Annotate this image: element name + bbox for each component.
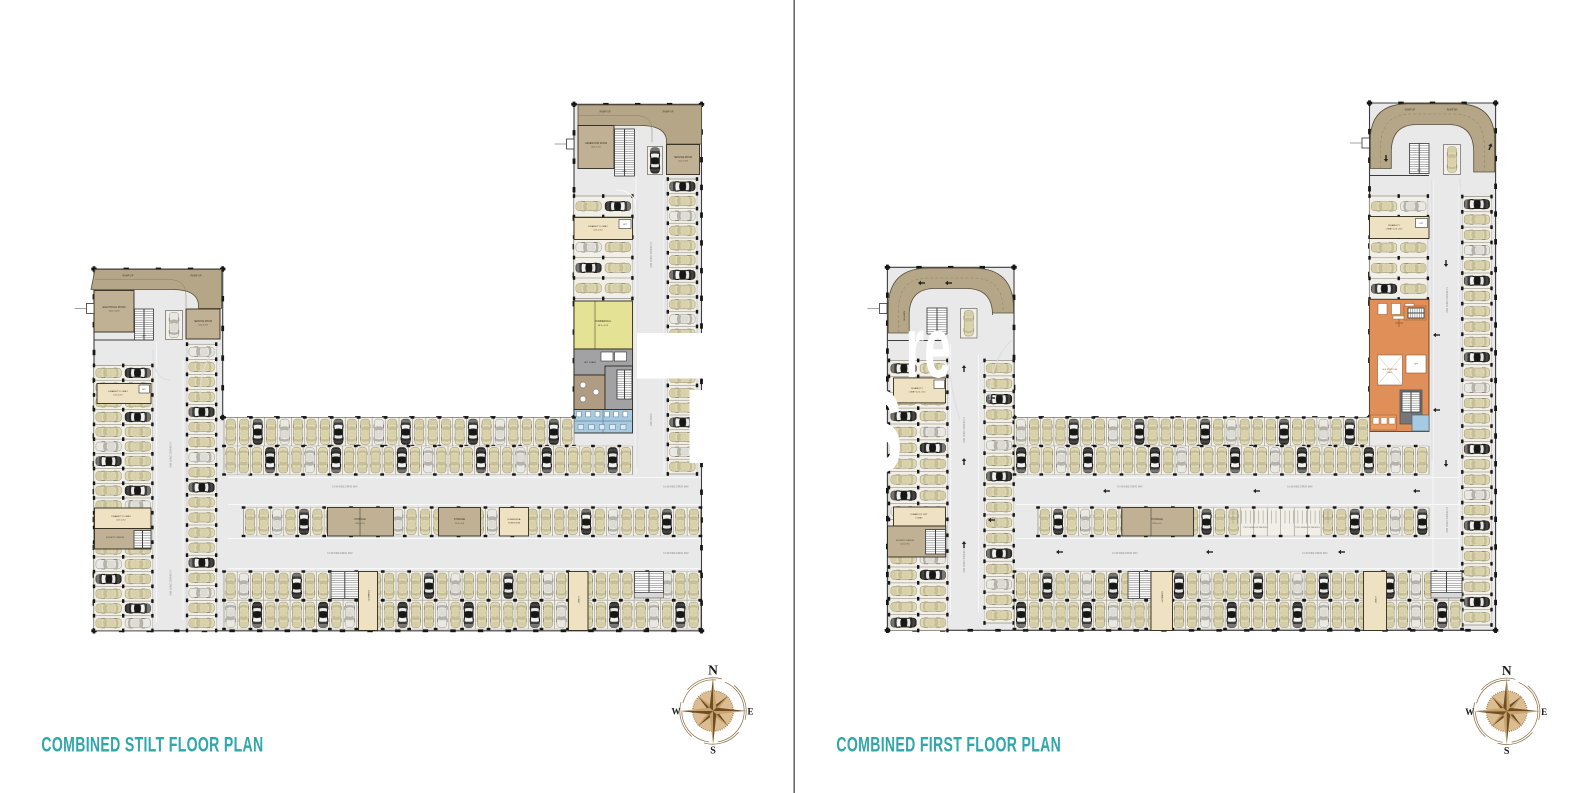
svg-text:ELECTRICAL ROOM: ELECTRICAL ROOM (103, 306, 126, 309)
svg-text:12.5 x 8.2: 12.5 x 8.2 (113, 395, 123, 397)
svg-text:SERVICE ROOM: SERVICE ROOM (194, 321, 212, 323)
svg-text:DISABILITY LOBBY: DISABILITY LOBBY (588, 225, 608, 228)
svg-text:GENERATOR ROOM: GENERATOR ROOM (585, 142, 607, 145)
svg-text:12.0 x 10.5: 12.0 x 10.5 (109, 311, 121, 313)
svg-text:18.5 x 14.2: 18.5 x 14.2 (598, 325, 609, 327)
svg-text:N: N (708, 663, 718, 678)
svg-text:TWO WHEELER PARKING: TWO WHEELER PARKING (1295, 526, 1320, 529)
svg-text:9.0 M WIDE DRIVE WAY: 9.0 M WIDE DRIVE WAY (663, 486, 689, 489)
svg-text:W: W (1465, 707, 1474, 717)
svg-text:LOBBY: LOBBY (916, 518, 924, 520)
svg-text:SERVICE ROOM: SERVICE ROOM (674, 157, 692, 159)
svg-text:9.0 M WIDE DRIVE WAY: 9.0 M WIDE DRIVE WAY (1112, 552, 1138, 555)
svg-text:9.0 M WIDE DRIVE WAY: 9.0 M WIDE DRIVE WAY (1445, 287, 1448, 313)
svg-text:E: E (1541, 707, 1547, 717)
svg-text:9.0 M WIDE DRIVE WAY: 9.0 M WIDE DRIVE WAY (169, 570, 172, 596)
svg-text:DISABILITY: DISABILITY (1388, 224, 1400, 227)
svg-text:SOCIETY OFFICE: SOCIETY OFFICE (896, 540, 915, 542)
svg-text:LOBBY: LOBBY (577, 597, 579, 605)
svg-text:LIFT: LIFT (1417, 170, 1422, 172)
svg-text:S: S (1504, 746, 1510, 757)
svg-text:COMMERCIAL: COMMERCIAL (595, 320, 612, 323)
svg-text:9.0 M WIDE DRIVE WAY: 9.0 M WIDE DRIVE WAY (169, 442, 172, 468)
svg-text:9.0 M WIDE DRIVE WAY: 9.0 M WIDE DRIVE WAY (1445, 507, 1448, 533)
svg-text:RAMP UP: RAMP UP (600, 111, 611, 114)
svg-text:TION ROOM: TION ROOM (508, 523, 520, 525)
svg-text:E: E (747, 707, 753, 717)
svg-text:SOCIETY OFFICE: SOCIETY OFFICE (106, 537, 125, 539)
svg-text:20.5 x 9.5: 20.5 x 9.5 (355, 523, 365, 525)
svg-text:10.5 x 9.2: 10.5 x 9.2 (591, 147, 601, 149)
svg-text:9.0 M WIDE DRIVE WAY: 9.0 M WIDE DRIVE WAY (332, 486, 358, 489)
svg-text:MULTIPURPOSE: MULTIPURPOSE (1383, 369, 1399, 371)
svg-text:12.5 x 8.2: 12.5 x 8.2 (593, 230, 603, 232)
svg-text:9.0 M WIDE DRIVE WAY: 9.0 M WIDE DRIVE WAY (962, 417, 965, 443)
svg-text:TWO WHEELER PARKING: TWO WHEELER PARKING (1243, 526, 1268, 529)
svg-text:12.5 x 8.2: 12.5 x 8.2 (116, 520, 126, 522)
svg-text:9.0 M WIDE DRIVE WAY: 9.0 M WIDE DRIVE WAY (1287, 486, 1313, 489)
svg-text:COMBINED STILT FLOOR PLAN: COMBINED STILT FLOOR PLAN (41, 733, 263, 756)
svg-text:RAMP DN: RAMP DN (1447, 109, 1458, 112)
svg-text:RAMP UP: RAMP UP (663, 111, 674, 114)
svg-text:DISABILITY LIFT: DISABILITY LIFT (911, 513, 929, 516)
svg-text:12.5 x 9.5: 12.5 x 9.5 (455, 523, 465, 525)
svg-text:re: re (905, 299, 951, 395)
svg-text:DISABILITY: DISABILITY (1161, 591, 1164, 603)
svg-text:9.0 M WIDE DRIVE WAY: 9.0 M WIDE DRIVE WAY (962, 547, 965, 573)
svg-text:RAMP UP: RAMP UP (123, 275, 134, 278)
svg-text:9.0 M WIDE DRIVE WAY: 9.0 M WIDE DRIVE WAY (649, 242, 652, 268)
svg-text:STORAGE: STORAGE (454, 518, 466, 521)
svg-text:12.0 x 9.5: 12.0 x 9.5 (900, 544, 910, 546)
svg-text:N: N (1502, 663, 1512, 678)
svg-text:W: W (672, 707, 681, 717)
svg-text:S: S (710, 746, 716, 757)
svg-text:COMBINED FIRST FLOOR PLAN: COMBINED FIRST FLOOR PLAN (836, 733, 1061, 756)
svg-text:9.0 M WIDE DRIVE WAY: 9.0 M WIDE DRIVE WAY (1302, 552, 1328, 555)
svg-text:LIFT LOBBY: LIFT LOBBY (584, 362, 597, 364)
svg-text:LIFT: LIFT (622, 171, 627, 173)
svg-text:DISABILITY: DISABILITY (367, 590, 370, 602)
svg-text:10.2 x 9.8: 10.2 x 9.8 (198, 325, 208, 327)
svg-text:s: s (861, 337, 903, 504)
svg-text:DISABILITY LOBBY: DISABILITY LOBBY (111, 515, 131, 518)
svg-text:HALL: HALL (1388, 371, 1393, 374)
svg-text:LIFT: LIFT (142, 336, 147, 338)
svg-text:DISABILITY LOBBY: DISABILITY LOBBY (108, 390, 128, 393)
svg-text:RAMP UP: RAMP UP (1405, 109, 1416, 112)
svg-text:DRIVE WAY: DRIVE WAY (649, 414, 652, 427)
svg-text:22.0 x 9.5: 22.0 x 9.5 (1152, 523, 1162, 525)
svg-text:COMMUNICA-: COMMUNICA- (507, 518, 521, 521)
svg-text:10.2 x 9.8: 10.2 x 9.8 (678, 161, 688, 163)
svg-text:LOBBY 12.5 x 8.2: LOBBY 12.5 x 8.2 (1386, 229, 1403, 231)
svg-text:LOBBY: LOBBY (1374, 597, 1376, 605)
svg-text:9.0 M WIDE DRIVE WAY: 9.0 M WIDE DRIVE WAY (663, 552, 689, 555)
svg-text:9.0 M WIDE DRIVE WAY: 9.0 M WIDE DRIVE WAY (327, 552, 353, 555)
svg-text:9.0 M WIDE DRIVE WAY: 9.0 M WIDE DRIVE WAY (1117, 486, 1143, 489)
svg-text:RAMP UP: RAMP UP (191, 275, 202, 278)
svg-text:STORAGE: STORAGE (1151, 518, 1163, 521)
